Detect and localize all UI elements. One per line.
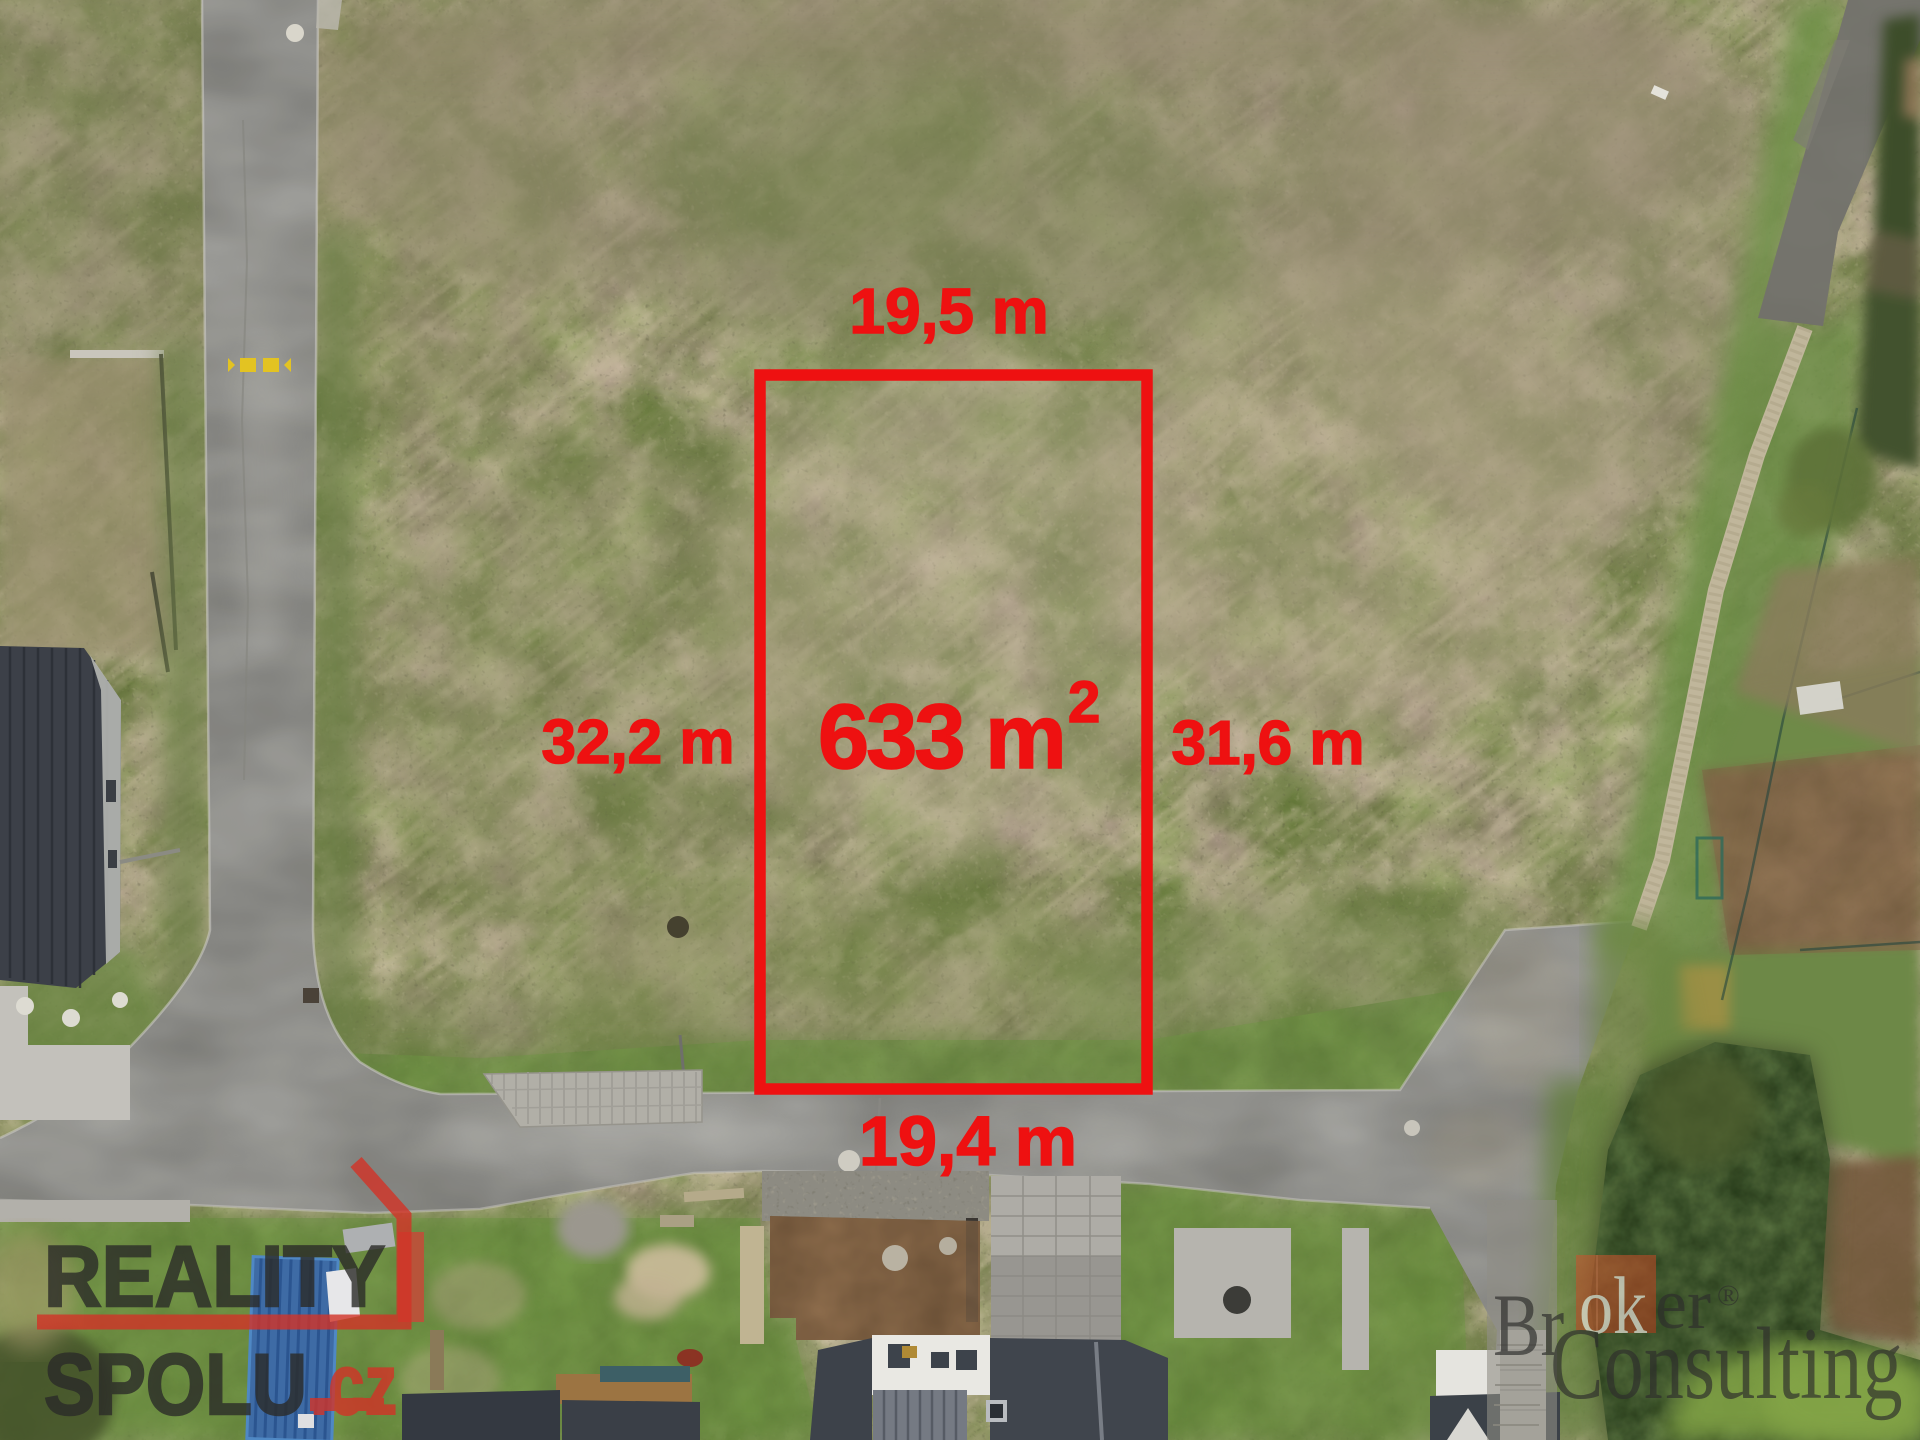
svg-text:19,4 m: 19,4 m	[859, 1102, 1077, 1180]
svg-text:31,6 m: 31,6 m	[1171, 709, 1364, 778]
svg-text:.cz: .cz	[310, 1337, 397, 1433]
svg-text:2: 2	[1068, 670, 1100, 735]
svg-text:19,5 m: 19,5 m	[849, 275, 1048, 347]
svg-text:REALITY: REALITY	[44, 1229, 385, 1325]
svg-text:SPOLU: SPOLU	[44, 1337, 307, 1433]
svg-text:32,2 m: 32,2 m	[541, 708, 734, 777]
svg-text:633 m: 633 m	[818, 686, 1064, 788]
svg-text:Consulting: Consulting	[1550, 1307, 1903, 1421]
